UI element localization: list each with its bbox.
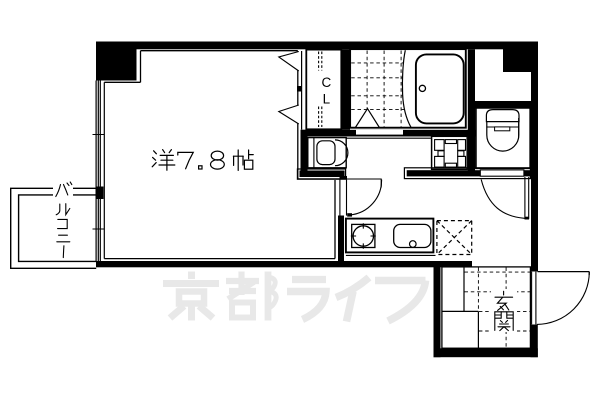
- svg-text:C: C: [322, 75, 332, 90]
- svg-text:L: L: [323, 92, 331, 107]
